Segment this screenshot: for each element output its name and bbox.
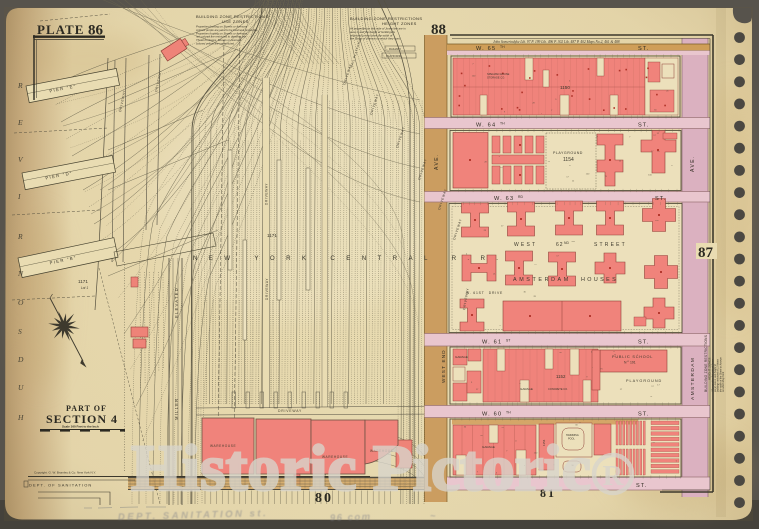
svg-text:ST.: ST.: [638, 412, 649, 418]
svg-text:ELEVATED: ELEVATED: [174, 287, 179, 318]
svg-text:ST.: ST.: [636, 483, 647, 489]
svg-text:WEST: WEST: [514, 242, 537, 248]
svg-text:AMSTERDAM: AMSTERDAM: [690, 357, 696, 400]
svg-text:W. 63: W. 63: [494, 196, 514, 202]
svg-text:SPELMAN HOUSE: SPELMAN HOUSE: [487, 72, 510, 76]
svg-text:the Street or Avenue on which: the Street or Avenue on which they front: [350, 37, 400, 41]
svg-text:PLATFORM: PLATFORM: [386, 54, 402, 58]
svg-text:N: N: [17, 269, 24, 278]
svg-text:WEST END: WEST END: [441, 349, 446, 383]
svg-text:Scale 160 Feet to the Inch: Scale 160 Feet to the Inch: [62, 425, 99, 429]
svg-text:TH: TH: [500, 122, 505, 126]
svg-text:TH: TH: [506, 411, 511, 415]
svg-text:Lot 1: Lot 1: [81, 286, 88, 290]
svg-text:RAILWAY: RAILWAY: [389, 47, 401, 51]
svg-text:62: 62: [556, 242, 564, 248]
svg-text:ST.: ST.: [655, 196, 666, 202]
svg-text:R: R: [603, 460, 625, 492]
svg-text:AMSTERDAM: AMSTERDAM: [513, 277, 571, 283]
svg-text:96 com: 96 com: [330, 512, 372, 524]
svg-text:DRIVEWAY: DRIVEWAY: [278, 409, 302, 413]
svg-text:DEPT. OF SANITATION: DEPT. OF SANITATION: [29, 483, 92, 488]
svg-text:~: ~: [430, 511, 436, 522]
svg-text:W. 61: W. 61: [482, 340, 502, 346]
svg-text:1171: 1171: [267, 233, 277, 238]
svg-text:USE ZONES: USE ZONES: [222, 19, 249, 24]
svg-text:PLAYGROUND: PLAYGROUND: [626, 379, 662, 383]
svg-text:U: U: [18, 383, 24, 392]
svg-text:HEIGHT ZONES: HEIGHT ZONES: [382, 21, 417, 26]
svg-text:STREET: STREET: [594, 242, 627, 248]
svg-text:CONCRETE CO.: CONCRETE CO.: [548, 387, 568, 391]
svg-text:PLAYGROUND: PLAYGROUND: [553, 151, 583, 155]
svg-text:AVE.: AVE.: [690, 155, 696, 172]
svg-text:W. 64: W. 64: [476, 123, 496, 129]
svg-text:DRIVEWAY: DRIVEWAY: [265, 183, 269, 205]
svg-text:R: R: [17, 81, 23, 90]
svg-text:88: 88: [431, 22, 446, 38]
svg-text:87: 87: [698, 245, 714, 261]
svg-text:DRIVEWAY: DRIVEWAY: [265, 278, 269, 300]
svg-text:HOUSES: HOUSES: [581, 277, 618, 283]
svg-text:O: O: [18, 298, 24, 307]
svg-text:MILLER: MILLER: [174, 398, 179, 420]
svg-text:D: D: [17, 355, 24, 364]
svg-text:Historic Pictoric: Historic Pictoric: [131, 432, 591, 505]
svg-text:ST: ST: [506, 339, 510, 343]
svg-text:colored yellow are unrestricte: colored yellow are unrestricted: [196, 42, 234, 46]
svg-text:1171: 1171: [78, 279, 88, 284]
svg-text:W. 61ST DRIVE: W. 61ST DRIVE: [466, 291, 503, 295]
svg-text:I: I: [17, 192, 21, 201]
svg-text:PLATE: PLATE: [37, 22, 84, 37]
svg-text:RD: RD: [518, 195, 523, 199]
svg-text:Copyright. G. W. Bromley & Co.: Copyright. G. W. Bromley & Co. New York …: [34, 471, 96, 475]
svg-text:E: E: [17, 118, 23, 127]
svg-text:ST.: ST.: [638, 340, 649, 346]
svg-text:GARAGE: GARAGE: [520, 387, 533, 391]
svg-text:PUBLIC SCHOOL: PUBLIC SCHOOL: [612, 355, 653, 359]
svg-text:R: R: [17, 232, 23, 241]
svg-text:1150: 1150: [560, 85, 570, 90]
svg-text:191: 191: [630, 361, 636, 365]
svg-text:AVE.: AVE.: [434, 153, 440, 170]
svg-text:ND: ND: [564, 241, 569, 245]
svg-text:on which they front: on which they front: [722, 372, 725, 392]
svg-text:1152: 1152: [556, 374, 566, 379]
svg-text:ST.: ST.: [638, 123, 649, 129]
svg-text:W. 60: W. 60: [482, 412, 502, 418]
svg-text:GARAGE: GARAGE: [455, 355, 468, 359]
svg-text:S: S: [18, 327, 22, 336]
svg-text:W. 65: W. 65: [476, 46, 496, 52]
svg-text:STORAGE CO.: STORAGE CO.: [487, 75, 505, 79]
svg-text:H: H: [17, 413, 24, 422]
svg-text:TH: TH: [500, 45, 505, 49]
svg-text:ST.: ST.: [638, 46, 649, 52]
svg-text:1154: 1154: [563, 157, 574, 163]
